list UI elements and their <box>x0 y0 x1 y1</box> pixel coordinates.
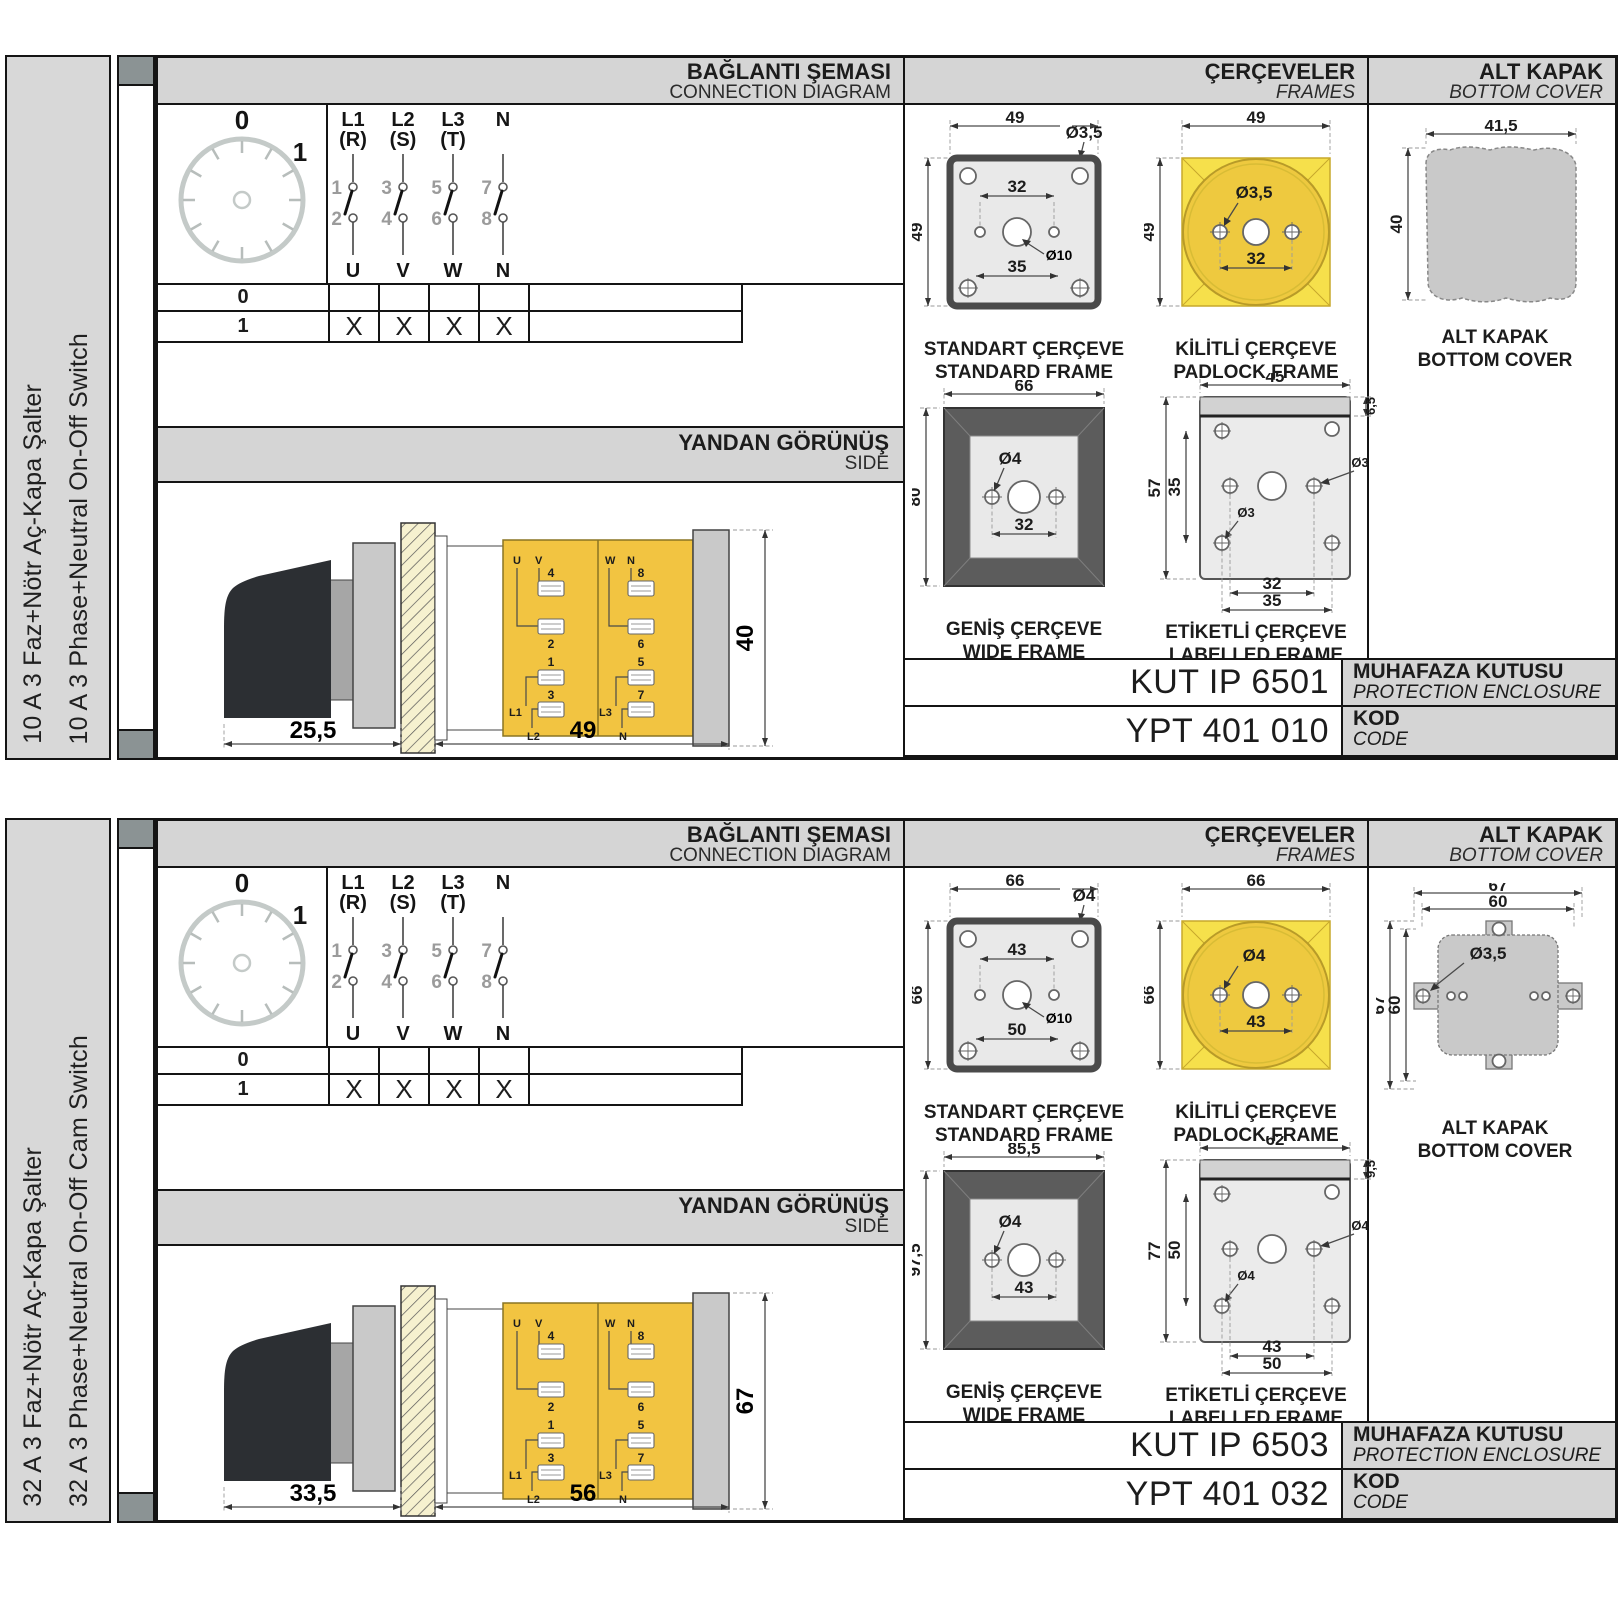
dim-width: 66 <box>1005 873 1024 890</box>
order-code: YPT 401 010 <box>905 707 1341 757</box>
terminal-number: 5 <box>431 178 442 199</box>
header-tr: ÇERÇEVELER <box>905 823 1355 846</box>
contact-mark: X <box>328 1075 378 1104</box>
side-view-drawing: U V W N 4 8 <box>173 1251 793 1519</box>
dim-hole-bottom: Ø3 <box>1237 505 1254 520</box>
switch-handle <box>224 560 331 718</box>
divider <box>903 58 905 757</box>
header-en: SIDE <box>158 454 889 474</box>
dim-height: 40 <box>1387 215 1406 234</box>
header-en: BOTTOM COVER <box>1369 846 1603 866</box>
label-en: PROTECTION ENCLOSURE <box>1353 1446 1615 1466</box>
caption-tr: KİLİTLİ ÇERÇEVE <box>1142 1102 1370 1123</box>
header-tr: ALT KAPAK <box>1369 823 1603 846</box>
product-name-turkish: 32 A 3 Faz+Nötr Aç-Kapa Şalter <box>19 1147 48 1507</box>
dim-width: 49 <box>1246 110 1265 127</box>
svg-text:V: V <box>535 555 543 567</box>
contact-mark: X <box>378 312 428 341</box>
contact-column-l1: L1 (R) 1 2 U <box>331 109 366 282</box>
terminal-number: 5 <box>431 941 442 962</box>
dim-hole: Ø4 <box>998 449 1021 468</box>
header-tr: BAĞLANTI ŞEMASI <box>158 823 891 846</box>
contact-mark <box>328 285 378 310</box>
output-label: N <box>496 1023 510 1045</box>
dim-height: 57 <box>1145 479 1164 498</box>
svg-text:N: N <box>619 1494 627 1506</box>
svg-text:6: 6 <box>638 1400 645 1414</box>
header-tr: ÇERÇEVELER <box>905 60 1355 83</box>
output-label: V <box>396 1023 410 1045</box>
switch-dial-cell: 0 1 <box>158 105 328 283</box>
connection-diagram-header: BAĞLANTI ŞEMASI CONNECTION DIAGRAM <box>158 58 903 105</box>
caption-tr: ETİKETLİ ÇERÇEVE <box>1142 622 1370 643</box>
terminal-number: 1 <box>331 178 342 199</box>
dial-position-0: 0 <box>235 105 249 135</box>
padlock-frame-drawing: 49 49 Ø3,5 32 <box>1144 110 1369 332</box>
contact-mark <box>478 285 528 310</box>
svg-text:W: W <box>605 555 616 567</box>
dim-span: 32 <box>1014 515 1033 534</box>
wide-frame-figure: 66 80 Ø4 32 GENİŞ ÇERÇEVE WIDE <box>910 380 1138 663</box>
bottom-cover-drawing: 67 60 67 60 <box>1376 883 1614 1111</box>
phase-label: L3 <box>441 109 464 131</box>
output-label: W <box>444 260 463 282</box>
terminal-number: 2 <box>331 972 342 993</box>
caption-tr: STANDART ÇERÇEVE <box>910 339 1138 360</box>
wide-frame-drawing: 85,5 97,5 Ø4 43 <box>912 1143 1137 1375</box>
wide-frame-figure: 85,5 97,5 Ø4 43 GENİŞ ÇERÇEVE W <box>910 1143 1138 1426</box>
svg-text:1: 1 <box>548 655 555 669</box>
wide-frame-drawing: 66 80 Ø4 32 <box>912 380 1137 612</box>
front-plate <box>353 543 395 728</box>
phase-alt-label: (S) <box>390 129 417 151</box>
dim-hole-right: Ø3 <box>1351 455 1368 470</box>
label-tr: MUHAFAZA KUTUSU <box>1353 661 1615 683</box>
enclosure-label: MUHAFAZA KUTUSU PROTECTION ENCLOSURE <box>1341 660 1615 707</box>
contact-column-n: N 7 8 N <box>481 872 510 1045</box>
contact-mark <box>328 1048 378 1073</box>
binder-strip <box>117 55 155 760</box>
output-label: N <box>496 260 510 282</box>
svg-text:4: 4 <box>548 566 555 580</box>
caption-tr: GENİŞ ÇERÇEVE <box>910 1382 1138 1403</box>
phase-label: L2 <box>391 109 414 131</box>
caption-tr: KİLİTLİ ÇERÇEVE <box>1142 339 1370 360</box>
dim-width: 49 <box>1005 110 1024 127</box>
dial-position-1: 1 <box>293 137 307 167</box>
terminal-number: 6 <box>431 209 442 230</box>
label-tr: KOD <box>1353 1471 1615 1493</box>
datasheet-body: BAĞLANTI ŞEMASI CONNECTION DIAGRAM ÇERÇE… <box>155 55 1618 760</box>
header-tr: YANDAN GÖRÜNÜŞ <box>158 1194 889 1217</box>
product-label-bar: 10 A 3 Faz+Nötr Aç-Kapa Şalter 10 A 3 Ph… <box>5 55 111 760</box>
contact-mark <box>378 1048 428 1073</box>
switch-dial-cell: 0 1 <box>158 868 328 1046</box>
dim-depth: 33,5 <box>290 1480 337 1507</box>
svg-text:L2: L2 <box>527 1494 540 1506</box>
dial-position-0: 0 <box>235 868 249 898</box>
dim-span: 32 <box>1246 249 1265 268</box>
terminal-number: 4 <box>381 972 392 993</box>
strip-cap-bottom <box>119 729 153 758</box>
svg-text:U: U <box>513 1318 521 1330</box>
product-panel: 10 A 3 Faz+Nötr Aç-Kapa Şalter 10 A 3 Ph… <box>5 55 1618 760</box>
dim-vspan: 50 <box>1165 1241 1184 1260</box>
dim-width: 62 <box>1266 1136 1285 1149</box>
phase-label: N <box>496 872 510 894</box>
contact-column-l2: L2 (S) 3 4 V <box>381 109 416 282</box>
svg-text:7: 7 <box>638 1451 645 1465</box>
labelled-frame-figure: 45 6,5 57 35 <box>1142 373 1370 666</box>
phase-label: L2 <box>391 872 414 894</box>
contact-column-l1: L1 (R) 1 2 U <box>331 872 366 1045</box>
dim-hole-bottom: Ø4 <box>1237 1268 1255 1283</box>
dim-center-hole: Ø10 <box>1045 247 1072 263</box>
strip-cap-top <box>119 57 153 86</box>
strip-cap-bottom <box>119 1492 153 1521</box>
contact-mark: X <box>478 312 528 341</box>
end-plate <box>693 530 729 746</box>
header-tr: ALT KAPAK <box>1369 60 1603 83</box>
dim-bottom-span: 35 <box>1007 257 1026 276</box>
dim-vspan: 35 <box>1165 478 1184 497</box>
contact-mark: X <box>478 1075 528 1104</box>
header-tr: YANDAN GÖRÜNÜŞ <box>158 431 889 454</box>
empty-cell <box>528 312 743 341</box>
contact-column-l3: L3 (T) 5 6 W <box>431 109 465 282</box>
phase-label: L1 <box>341 872 364 894</box>
svg-text:1: 1 <box>548 1418 555 1432</box>
side-view-header: YANDAN GÖRÜNÜŞ SIDE <box>158 426 903 483</box>
dim-width: 66 <box>1246 873 1265 890</box>
position-label: 0 <box>158 1048 328 1073</box>
caption-tr: ETİKETLİ ÇERÇEVE <box>1142 1385 1370 1406</box>
enclosure-code-row: KUT IP 6501 MUHAFAZA KUTUSU PROTECTION E… <box>905 658 1615 707</box>
phase-alt-label: (S) <box>390 892 417 914</box>
svg-text:3: 3 <box>548 688 555 702</box>
front-plate <box>353 1306 395 1491</box>
terminal-number: 1 <box>331 941 342 962</box>
enclosure-code: KUT IP 6501 <box>905 660 1341 707</box>
terminal-number: 3 <box>381 941 392 962</box>
contact-column-n: N 7 8 N <box>481 109 510 282</box>
dim-height: 40 <box>732 625 759 652</box>
dim-hole: Ø3,5 <box>1235 183 1272 202</box>
bottom-cover-header: ALT KAPAK BOTTOM COVER <box>1369 821 1615 868</box>
output-label: W <box>444 1023 463 1045</box>
contact-mark <box>378 285 428 310</box>
dim-width: 85,5 <box>1007 1143 1040 1158</box>
dim-height: 49 <box>1144 223 1158 242</box>
dim-span: 43 <box>1246 1012 1265 1031</box>
contact-mark: X <box>428 1075 478 1104</box>
phase-label: N <box>496 109 510 131</box>
labelled-frame-figure: 62 9,5 77 50 <box>1142 1136 1370 1429</box>
end-plate <box>693 1293 729 1509</box>
code-label: KOD CODE <box>1341 707 1615 757</box>
terminal-number: 7 <box>481 941 492 962</box>
dim-span2: 50 <box>1263 1354 1282 1373</box>
dim-width: 45 <box>1266 373 1285 386</box>
terminal-number: 8 <box>481 972 492 993</box>
svg-text:2: 2 <box>548 637 555 651</box>
dim-height: 67 <box>732 1388 759 1415</box>
dim-hole-right: Ø4 <box>1351 1218 1369 1233</box>
binder-strip <box>117 818 155 1523</box>
phase-alt-label: (R) <box>339 129 367 151</box>
contact-mark <box>428 285 478 310</box>
bottom-cover-drawing: 41,5 40 <box>1378 120 1613 320</box>
switch-table-row-1: 1 X X X X <box>158 312 743 343</box>
dim-length: 49 <box>570 717 597 744</box>
label-tr: KOD <box>1353 708 1615 730</box>
dim-height: 80 <box>912 488 924 507</box>
product-name-turkish: 10 A 3 Faz+Nötr Aç-Kapa Şalter <box>19 384 48 744</box>
caption-en: BOTTOM COVER <box>1376 350 1614 371</box>
switch-handle <box>224 1323 331 1481</box>
dim-span: 43 <box>1014 1278 1033 1297</box>
svg-text:5: 5 <box>638 655 645 669</box>
divider <box>903 821 905 1520</box>
label-tr: MUHAFAZA KUTUSU <box>1353 1424 1615 1446</box>
svg-text:8: 8 <box>638 1329 645 1343</box>
side-view-header: YANDAN GÖRÜNÜŞ SIDE <box>158 1189 903 1246</box>
phase-alt-label: (T) <box>440 129 466 151</box>
standard-frame-figure: 49 Ø3,5 49 Ø10 32 35 <box>910 110 1138 383</box>
dim-hole: Ø4 <box>1242 946 1265 965</box>
output-label: U <box>346 1023 360 1045</box>
contact-mark: X <box>428 312 478 341</box>
dim-height: 77 <box>1145 1242 1164 1261</box>
switch-dial-drawing: 0 1 <box>158 105 326 277</box>
mounting-panel <box>401 1286 435 1516</box>
contact-mark: X <box>378 1075 428 1104</box>
contact-column-l2: L2 (S) 3 4 V <box>381 872 416 1045</box>
header-en: CONNECTION DIAGRAM <box>158 846 891 866</box>
standard-frame-figure: 66 Ø4 66 Ø10 43 50 <box>910 873 1138 1146</box>
position-label: 1 <box>158 1075 328 1104</box>
caption-tr: ALT KAPAK <box>1376 1118 1614 1139</box>
contact-mark <box>428 1048 478 1073</box>
product-name-english: 32 A 3 Phase+Neutral On-Off Cam Switch <box>65 1035 94 1507</box>
header-en: SIDE <box>158 1217 889 1237</box>
switch-dial-drawing: 0 1 <box>158 868 326 1040</box>
height-dimension: 67 <box>732 1293 773 1509</box>
dim-span: 43 <box>1007 940 1026 959</box>
svg-text:4: 4 <box>548 1329 555 1343</box>
padlock-frame-figure: 66 66 Ø4 43 KİLİTLİ ÇERÇEVE <box>1142 873 1370 1146</box>
dim-span2: 35 <box>1263 591 1282 610</box>
header-en: BOTTOM COVER <box>1369 83 1603 103</box>
dim-span: 32 <box>1007 177 1026 196</box>
svg-text:L1: L1 <box>509 707 522 719</box>
order-code-row: YPT 401 010 KOD CODE <box>905 707 1615 757</box>
dim-bottom-span: 50 <box>1007 1020 1026 1039</box>
position-label: 1 <box>158 312 328 341</box>
dim-center-hole: Ø10 <box>1045 1010 1072 1026</box>
header-en: CONNECTION DIAGRAM <box>158 83 891 103</box>
enclosure-code: KUT IP 6503 <box>905 1423 1341 1470</box>
svg-text:N: N <box>627 1318 635 1330</box>
terminal-number: 6 <box>431 972 442 993</box>
code-label: KOD CODE <box>1341 1470 1615 1520</box>
terminal-number: 3 <box>381 178 392 199</box>
strip-cap-top <box>119 820 153 849</box>
header-en: FRAMES <box>905 846 1355 866</box>
standard-frame-drawing: 49 Ø3,5 49 Ø10 32 35 <box>912 110 1137 332</box>
phase-label: L1 <box>341 109 364 131</box>
padlock-frame-drawing: 66 66 Ø4 43 <box>1144 873 1369 1095</box>
terminal-number: 8 <box>481 209 492 230</box>
product-name-english: 10 A 3 Phase+Neutral On-Off Switch <box>65 333 94 744</box>
dim-depth: 25,5 <box>290 717 337 744</box>
label-en: CODE <box>1353 730 1615 750</box>
terminal-number: 7 <box>481 178 492 199</box>
dim-height: 66 <box>912 986 926 1005</box>
empty-cell <box>528 1048 743 1073</box>
phase-label: L3 <box>441 872 464 894</box>
product-label-bar: 32 A 3 Faz+Nötr Aç-Kapa Şalter 32 A 3 Ph… <box>5 818 111 1523</box>
dim-width: 41,5 <box>1484 120 1517 135</box>
svg-text:L3: L3 <box>599 707 612 719</box>
dim-strip: 9,5 <box>1363 1160 1377 1178</box>
header-en: FRAMES <box>905 83 1355 103</box>
dim-hole: Ø4 <box>998 1212 1021 1231</box>
svg-text:L2: L2 <box>527 731 540 743</box>
connection-diagram-header: BAĞLANTI ŞEMASI CONNECTION DIAGRAM <box>158 821 903 868</box>
frames-header: ÇERÇEVELER FRAMES <box>905 821 1367 868</box>
svg-text:V: V <box>535 1318 543 1330</box>
dim-hole: Ø3,5 <box>1065 123 1102 142</box>
enclosure-label: MUHAFAZA KUTUSU PROTECTION ENCLOSURE <box>1341 1423 1615 1470</box>
caption-tr: STANDART ÇERÇEVE <box>910 1102 1138 1123</box>
dim-height: 49 <box>912 223 926 242</box>
catalog-page: 10 A 3 Faz+Nötr Aç-Kapa Şalter 10 A 3 Ph… <box>0 0 1623 1623</box>
svg-text:8: 8 <box>638 566 645 580</box>
dim-hole: Ø4 <box>1072 886 1095 905</box>
contact-mark: X <box>328 312 378 341</box>
label-en: CODE <box>1353 1493 1615 1513</box>
switch-table-row-0: 0 <box>158 1048 743 1075</box>
bottom-cover-figure: 67 67 67 60 67 <box>1376 883 1614 1162</box>
frames-header: ÇERÇEVELER FRAMES <box>905 58 1367 105</box>
switch-table-row-1: 1 X X X X <box>158 1075 743 1106</box>
empty-cell <box>528 285 743 310</box>
svg-text:L1: L1 <box>509 1470 522 1482</box>
caption-tr: ALT KAPAK <box>1376 327 1614 348</box>
empty-cell <box>528 1075 743 1104</box>
dim-hole: Ø3,5 <box>1470 944 1507 963</box>
svg-text:L3: L3 <box>599 1470 612 1482</box>
datasheet-body: BAĞLANTI ŞEMASI CONNECTION DIAGRAM ÇERÇE… <box>155 818 1618 1523</box>
switch-table-row-0: 0 <box>158 285 743 312</box>
dim-width-inner: 60 <box>1489 892 1508 911</box>
bottom-cover-header: ALT KAPAK BOTTOM COVER <box>1369 58 1615 105</box>
caption-en: BOTTOM COVER <box>1376 1141 1614 1162</box>
enclosure-code-row: KUT IP 6503 MUHAFAZA KUTUSU PROTECTION E… <box>905 1421 1615 1470</box>
phase-alt-label: (T) <box>440 892 466 914</box>
terminal-number: 2 <box>331 209 342 230</box>
svg-text:5: 5 <box>638 1418 645 1432</box>
bottom-cover-figure: 41,5 40 41,5 40 <box>1376 120 1614 371</box>
terminal-number: 4 <box>381 209 392 230</box>
switch-body: U V W N 4 8 <box>503 1303 693 1506</box>
dim-strip: 6,5 <box>1363 397 1377 415</box>
contact-column-l3: L3 (T) 5 6 W <box>431 872 465 1045</box>
height-dimension: 40 <box>732 530 773 746</box>
contact-mark <box>478 1048 528 1073</box>
switch-body: U V W N 4 8 <box>503 540 693 743</box>
output-label: U <box>346 260 360 282</box>
header-tr: BAĞLANTI ŞEMASI <box>158 60 891 83</box>
svg-text:U: U <box>513 555 521 567</box>
order-code-row: YPT 401 032 KOD CODE <box>905 1470 1615 1520</box>
svg-text:2: 2 <box>548 1400 555 1414</box>
side-view-drawing: U V W N 4 8 <box>173 488 793 756</box>
dial-position-1: 1 <box>293 900 307 930</box>
output-label: V <box>396 260 410 282</box>
order-code: YPT 401 032 <box>905 1470 1341 1520</box>
product-panel: 32 A 3 Faz+Nötr Aç-Kapa Şalter 32 A 3 Ph… <box>5 818 1618 1523</box>
svg-text:W: W <box>605 1318 616 1330</box>
svg-text:6: 6 <box>638 637 645 651</box>
contact-diagram: L1 (R) 1 2 U L2 (S) 3 4 <box>328 108 758 283</box>
position-label: 0 <box>158 285 328 310</box>
dim-length: 56 <box>570 1480 597 1507</box>
svg-text:N: N <box>619 731 627 743</box>
label-en: PROTECTION ENCLOSURE <box>1353 683 1615 703</box>
svg-text:3: 3 <box>548 1451 555 1465</box>
svg-text:7: 7 <box>638 688 645 702</box>
contact-diagram: L1 (R) 1 2 U L2 (S) 3 4 <box>328 871 758 1046</box>
labelled-frame-drawing: 45 6,5 57 35 <box>1142 373 1377 615</box>
dim-height: 66 <box>1144 986 1158 1005</box>
dim-height-inner: 60 <box>1385 996 1404 1015</box>
standard-frame-drawing: 66 Ø4 66 Ø10 43 50 <box>912 873 1137 1095</box>
svg-text:N: N <box>627 555 635 567</box>
dim-width: 66 <box>1014 380 1033 395</box>
mounting-panel <box>401 523 435 753</box>
dim-height: 97,5 <box>912 1243 924 1276</box>
phase-alt-label: (R) <box>339 892 367 914</box>
padlock-frame-figure: 49 49 Ø3,5 32 KİLİTLİ ÇERÇEV <box>1142 110 1370 383</box>
caption-tr: GENİŞ ÇERÇEVE <box>910 619 1138 640</box>
labelled-frame-drawing: 62 9,5 77 50 <box>1142 1136 1377 1378</box>
